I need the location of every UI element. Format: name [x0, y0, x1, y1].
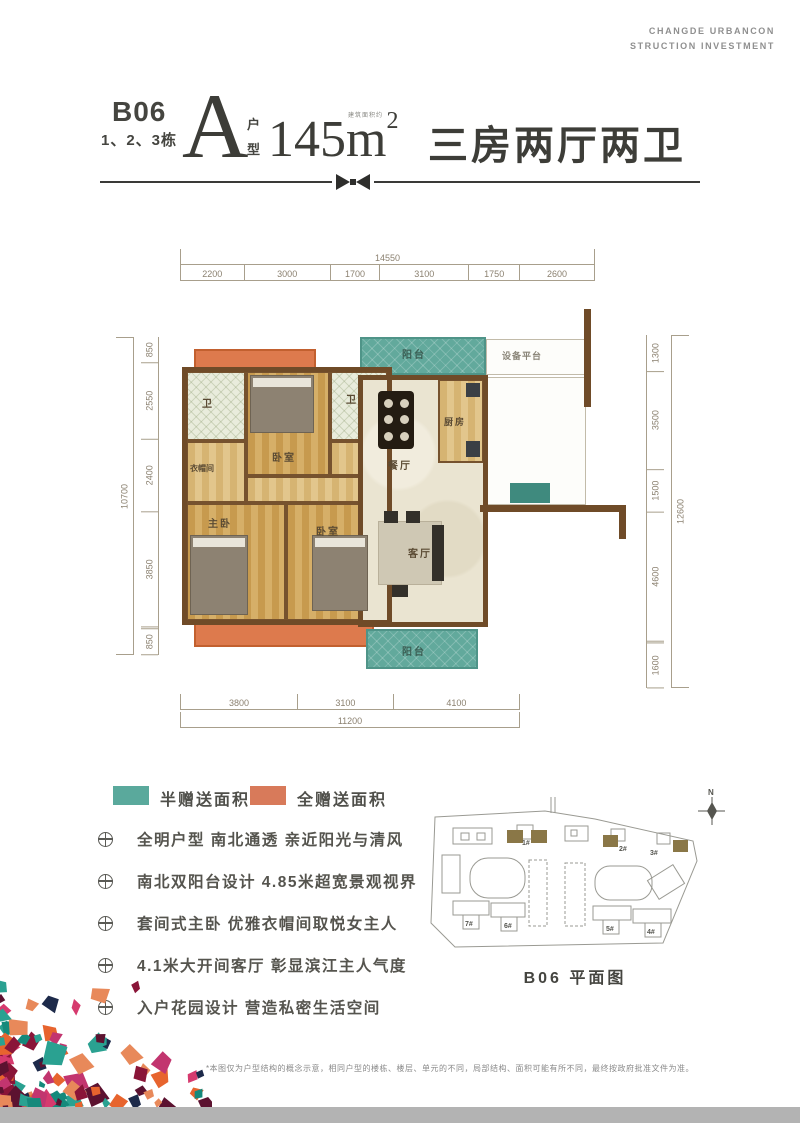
bottom-gray-bar: [0, 1107, 800, 1123]
room-label: 卫: [346, 391, 358, 406]
circle-plus-icon: [98, 832, 113, 847]
feature-text: 全明户型 南北通透 亲近阳光与清风: [137, 828, 404, 850]
dim-value: 850: [141, 337, 158, 363]
building-numbers: 1、2、3栋: [101, 129, 177, 150]
mosaic-decoration: [0, 976, 212, 1108]
dim-left-total: 10700: [116, 337, 134, 655]
dim-bottom-segments: 3800 3100 4100: [180, 694, 520, 710]
legend-swatch-half: [113, 786, 149, 805]
dim-value: 3800: [180, 694, 297, 710]
dim-value: 3500: [647, 372, 664, 470]
bed-furniture: [312, 535, 368, 611]
dim-value: 850: [141, 628, 158, 655]
dim-value: 3000: [244, 265, 330, 281]
dim-value: 4100: [393, 694, 520, 710]
disclaimer-text: *本图仅为户型结构的概念示意，相同户型的楼栋、楼层、单元的不同，局部结构、面积可…: [150, 1063, 750, 1074]
room-label: 阳台: [402, 346, 426, 361]
feature-item: 套间式主卧 优雅衣帽间取悦女主人: [98, 912, 417, 934]
room-label: 衣帽间: [190, 463, 214, 474]
dim-value: 2600: [519, 265, 595, 281]
floorplan-poster: CHANGDE URBANCON STRUCTION INVESTMENT B0…: [0, 0, 800, 1123]
brand-line1: CHANGDE URBANCON: [630, 24, 775, 39]
circle-plus-icon: [98, 874, 113, 889]
dining-table-furniture: [378, 391, 414, 449]
svg-text:N: N: [708, 788, 714, 797]
building-label: 5#: [606, 926, 614, 933]
area-note: 建筑面积约: [348, 113, 383, 120]
floor-plan: 阳台 设备平台 卫 卧室 卫 厨房 餐厅 衣帽间 主卧 卧室 客厅 阳台: [180, 333, 595, 683]
site-plan-map: 1# 2# 3# 7# 6# 5# 4# N: [425, 783, 725, 961]
wall-stub: [619, 505, 626, 539]
armchair-furniture: [384, 511, 398, 523]
brand-line2: STRUCTION INVESTMENT: [630, 39, 775, 54]
wall-right: [584, 309, 591, 407]
wall-bottom-right: [480, 505, 626, 512]
divider-line: [100, 181, 700, 183]
building-label: 2#: [619, 846, 627, 853]
room-label: 设备平台: [502, 349, 542, 362]
room-label: 餐厅: [388, 457, 412, 472]
room-label: 卧室: [272, 449, 296, 464]
tv-cabinet-furniture: [432, 525, 444, 581]
dim-value: 3100: [379, 265, 468, 281]
dim-value: 10700: [116, 337, 133, 655]
bowtie-icon: [332, 171, 374, 193]
dim-value: 1300: [647, 335, 664, 372]
dim-value: 2400: [141, 440, 158, 512]
room-label: 客厅: [408, 545, 432, 560]
bay-window-top: [194, 349, 316, 373]
bay-window-bottom: [194, 623, 374, 647]
unit-word: 户 型: [247, 113, 260, 162]
dim-value: 4600: [647, 513, 664, 642]
sitemap-caption: B06 平面图: [425, 964, 725, 988]
feature-text: 套间式主卧 优雅衣帽间取悦女主人: [137, 912, 398, 934]
dim-right-total: 12600: [671, 335, 689, 688]
dim-value: 1750: [468, 265, 519, 281]
building-label: 7#: [465, 921, 473, 928]
area-number: 145: [268, 111, 346, 168]
area-sup: 2: [386, 108, 398, 134]
armchair-furniture: [406, 511, 420, 523]
building-label: 4#: [647, 929, 655, 936]
circle-plus-icon: [98, 958, 113, 973]
building-label: 6#: [504, 923, 512, 930]
bed-furniture: [250, 375, 314, 433]
dim-value: 14550: [180, 249, 595, 265]
room-label: 厨房: [444, 415, 466, 428]
unit-word-bottom: 型: [247, 138, 260, 163]
bathroom-1: [186, 371, 246, 441]
room-label: 阳台: [402, 643, 426, 658]
stove-icon: [466, 383, 480, 397]
feature-item: 4.1米大开间客厅 彰显滨江主人气度: [98, 954, 417, 976]
dim-value: 3850: [141, 512, 158, 627]
dim-bottom-total: 11200: [180, 712, 520, 728]
bed-furniture: [190, 535, 248, 615]
entry-mat: [510, 483, 550, 503]
circle-plus-icon: [98, 916, 113, 931]
dim-value: 3100: [297, 694, 393, 710]
dim-top-segments: 2200 3000 1700 3100 1750 2600: [180, 265, 595, 281]
compass-icon: N: [698, 788, 725, 825]
building-label: 3#: [650, 850, 658, 857]
dim-value: 11200: [180, 712, 520, 728]
feature-item: 南北双阳台设计 4.85米超宽景观视界: [98, 870, 417, 892]
room-label: 主卧: [208, 515, 232, 530]
dim-left-segments: 850 2550 2400 3850 850: [141, 337, 159, 655]
armchair-furniture: [392, 585, 408, 597]
feature-item: 全明户型 南北通透 亲近阳光与清风: [98, 828, 417, 850]
brand-text: CHANGDE URBANCON STRUCTION INVESTMENT: [630, 24, 775, 55]
legend-label-full: 全赠送面积: [297, 786, 387, 810]
room-label: 卧室: [316, 523, 340, 538]
dim-right-segments: 1300 3500 1500 4600 1600: [646, 335, 664, 688]
dim-value: 1600: [647, 642, 664, 688]
legend-label-half: 半赠送面积: [160, 786, 250, 810]
block-code: B06: [112, 96, 166, 128]
building-label: 1#: [522, 840, 530, 847]
dim-value: 2550: [141, 363, 158, 440]
dim-value: 1700: [330, 265, 379, 281]
feature-text: 南北双阳台设计 4.85米超宽景观视界: [137, 870, 417, 892]
area-text: 145建筑面积约m2: [268, 108, 398, 168]
dim-value: 12600: [672, 335, 689, 688]
dim-top-total: 14550: [180, 249, 595, 265]
dim-value: 1500: [647, 470, 664, 513]
legend-swatch-full: [250, 786, 286, 805]
unit-letter: A: [182, 80, 248, 172]
sink-icon: [466, 441, 480, 457]
dim-value: 2200: [180, 265, 244, 281]
room-label: 卫: [202, 395, 214, 410]
feature-text: 4.1米大开间客厅 彰显滨江主人气度: [137, 954, 407, 976]
layout-title: 三房两厅两卫: [428, 113, 686, 171]
unit-word-top: 户: [247, 113, 260, 138]
